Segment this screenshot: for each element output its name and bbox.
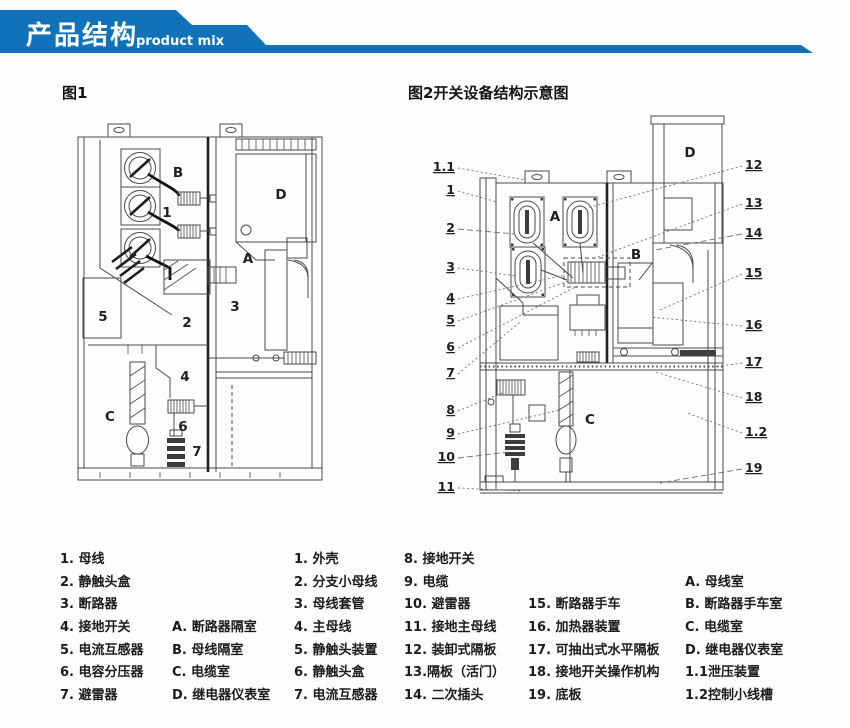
- legend-item: 1.2控制小线槽: [685, 684, 773, 703]
- fig2-callout: 8: [446, 402, 455, 417]
- legend-item: B. 母线隔室: [172, 639, 243, 658]
- legend-item: 12. 装卸式隔板: [404, 639, 497, 658]
- figure2-drawing: 1.11234567891011 121314151617181.219 ABC…: [425, 110, 825, 535]
- fig2-callout: 3: [446, 259, 455, 274]
- fig2-callout: 1: [446, 182, 455, 197]
- figure1-drawing: B1DA5234C67: [60, 110, 345, 535]
- legend-item: 4. 接地开关: [60, 616, 131, 635]
- fig2-callout: 16: [745, 317, 763, 332]
- fig2-callout: 11: [438, 479, 455, 494]
- fig1-region-label: B: [173, 165, 183, 181]
- legend-item: 6. 电容分压器: [60, 661, 144, 680]
- figure2-callouts-left: 1.11234567891011: [433, 159, 455, 494]
- legend-item: 3. 断路器: [60, 593, 118, 612]
- legend-item: 1.1泄压装置: [685, 661, 760, 680]
- legend-item: 10. 避雷器: [404, 593, 471, 612]
- fig2-callout: 4: [446, 290, 455, 305]
- fig2-callout: 13: [745, 195, 762, 210]
- fig1-region-label: C: [105, 409, 115, 425]
- page-subtitle: product mix: [136, 34, 225, 49]
- fig1-region-label: 3: [230, 299, 239, 315]
- legend-item: 17. 可抽出式水平隔板: [528, 639, 660, 658]
- fig2-region-label: D: [684, 145, 695, 161]
- fig1-region-label: 4: [180, 369, 189, 385]
- legend-item: C. 电缆室: [172, 661, 230, 680]
- legend-item: 11. 接地主母线: [404, 616, 497, 635]
- legend-item: 18. 接地开关操作机构: [528, 661, 660, 680]
- legend-item: 7. 电流互感器: [294, 684, 378, 703]
- legend-item: 1. 母线: [60, 548, 105, 567]
- fig1-region-label: 1: [162, 205, 171, 221]
- parts-legend: 1. 母线2. 静触头盒3. 断路器4. 接地开关5. 电流互感器6. 电容分压…: [0, 540, 850, 725]
- legend-item: 5. 电流互感器: [60, 639, 144, 658]
- figure2-region-labels: ABCD: [550, 145, 696, 428]
- legend-item: 16. 加热器装置: [528, 616, 621, 635]
- page-title: 产品结构: [26, 21, 138, 51]
- fig2-callout: 18: [745, 389, 762, 404]
- fig2-callout: 10: [438, 449, 456, 464]
- fig1-region-label: 2: [182, 315, 191, 331]
- figure1-linework: [78, 124, 322, 480]
- legend-item: 15. 断路器手车: [528, 593, 621, 612]
- header-banner: 产品结构 product mix: [0, 0, 850, 60]
- fig1-region-label: 5: [98, 309, 107, 325]
- fig2-callout: 17: [745, 354, 762, 369]
- fig2-callout: 6: [446, 339, 455, 354]
- legend-item: A. 母线室: [685, 571, 744, 590]
- fig2-callout: 12: [745, 157, 762, 172]
- legend-item: 4. 主母线: [294, 616, 352, 635]
- fig2-callout: 1.1: [433, 159, 455, 174]
- fig1-region-label: A: [243, 251, 254, 267]
- fig1-region-label: D: [275, 187, 286, 203]
- fig2-callout: 15: [745, 265, 762, 280]
- fig2-callout: 2: [446, 220, 455, 235]
- page: 产品结构 product mix 图1 图2开关设备结构示意图: [0, 0, 850, 728]
- legend-item: B. 断路器手车室: [685, 593, 782, 612]
- legend-item: 8. 接地开关: [404, 548, 475, 567]
- fig2-callout: 1.2: [745, 424, 767, 439]
- fig2-callout: 14: [745, 225, 763, 240]
- fig2-callout: 7: [446, 365, 455, 380]
- fig2-region-label: B: [631, 247, 641, 263]
- legend-item: 13.隔板（活门）: [404, 661, 505, 680]
- legend-item: 2. 静触头盒: [60, 571, 131, 590]
- figure2-linework: [480, 116, 724, 493]
- fig1-region-label: 7: [192, 444, 201, 460]
- fig2-callout: 5: [446, 312, 455, 327]
- legend-item: D. 继电器仪表室: [172, 684, 270, 703]
- fig2-region-label: C: [585, 412, 595, 428]
- legend-item: 2. 分支小母线: [294, 571, 378, 590]
- legend-item: D. 继电器仪表室: [685, 639, 783, 658]
- figure2-callouts-right: 121314151617181.219: [745, 157, 767, 475]
- legend-item: A. 断路器隔室: [172, 616, 257, 635]
- fig2-callout: 19: [745, 460, 762, 475]
- legend-item: 14. 二次插头: [404, 684, 484, 703]
- figure2-title: 图2开关设备结构示意图: [408, 82, 568, 103]
- fig2-callout: 9: [446, 425, 455, 440]
- fig1-region-label: 6: [178, 419, 187, 435]
- legend-item: 9. 电缆: [404, 571, 449, 590]
- legend-item: 7. 避雷器: [60, 684, 118, 703]
- legend-item: C. 电缆室: [685, 616, 743, 635]
- legend-item: 6. 静触头盒: [294, 661, 365, 680]
- legend-item: 3. 母线套管: [294, 593, 365, 612]
- figure1-title: 图1: [62, 82, 87, 103]
- fig2-region-label: A: [550, 209, 561, 225]
- figure2-leader-lines: [458, 166, 742, 491]
- figure1-region-labels: B1DA5234C67: [98, 165, 286, 460]
- legend-item: 1. 外壳: [294, 548, 339, 567]
- legend-item: 19. 底板: [528, 684, 582, 703]
- legend-item: 5. 静触头装置: [294, 639, 378, 658]
